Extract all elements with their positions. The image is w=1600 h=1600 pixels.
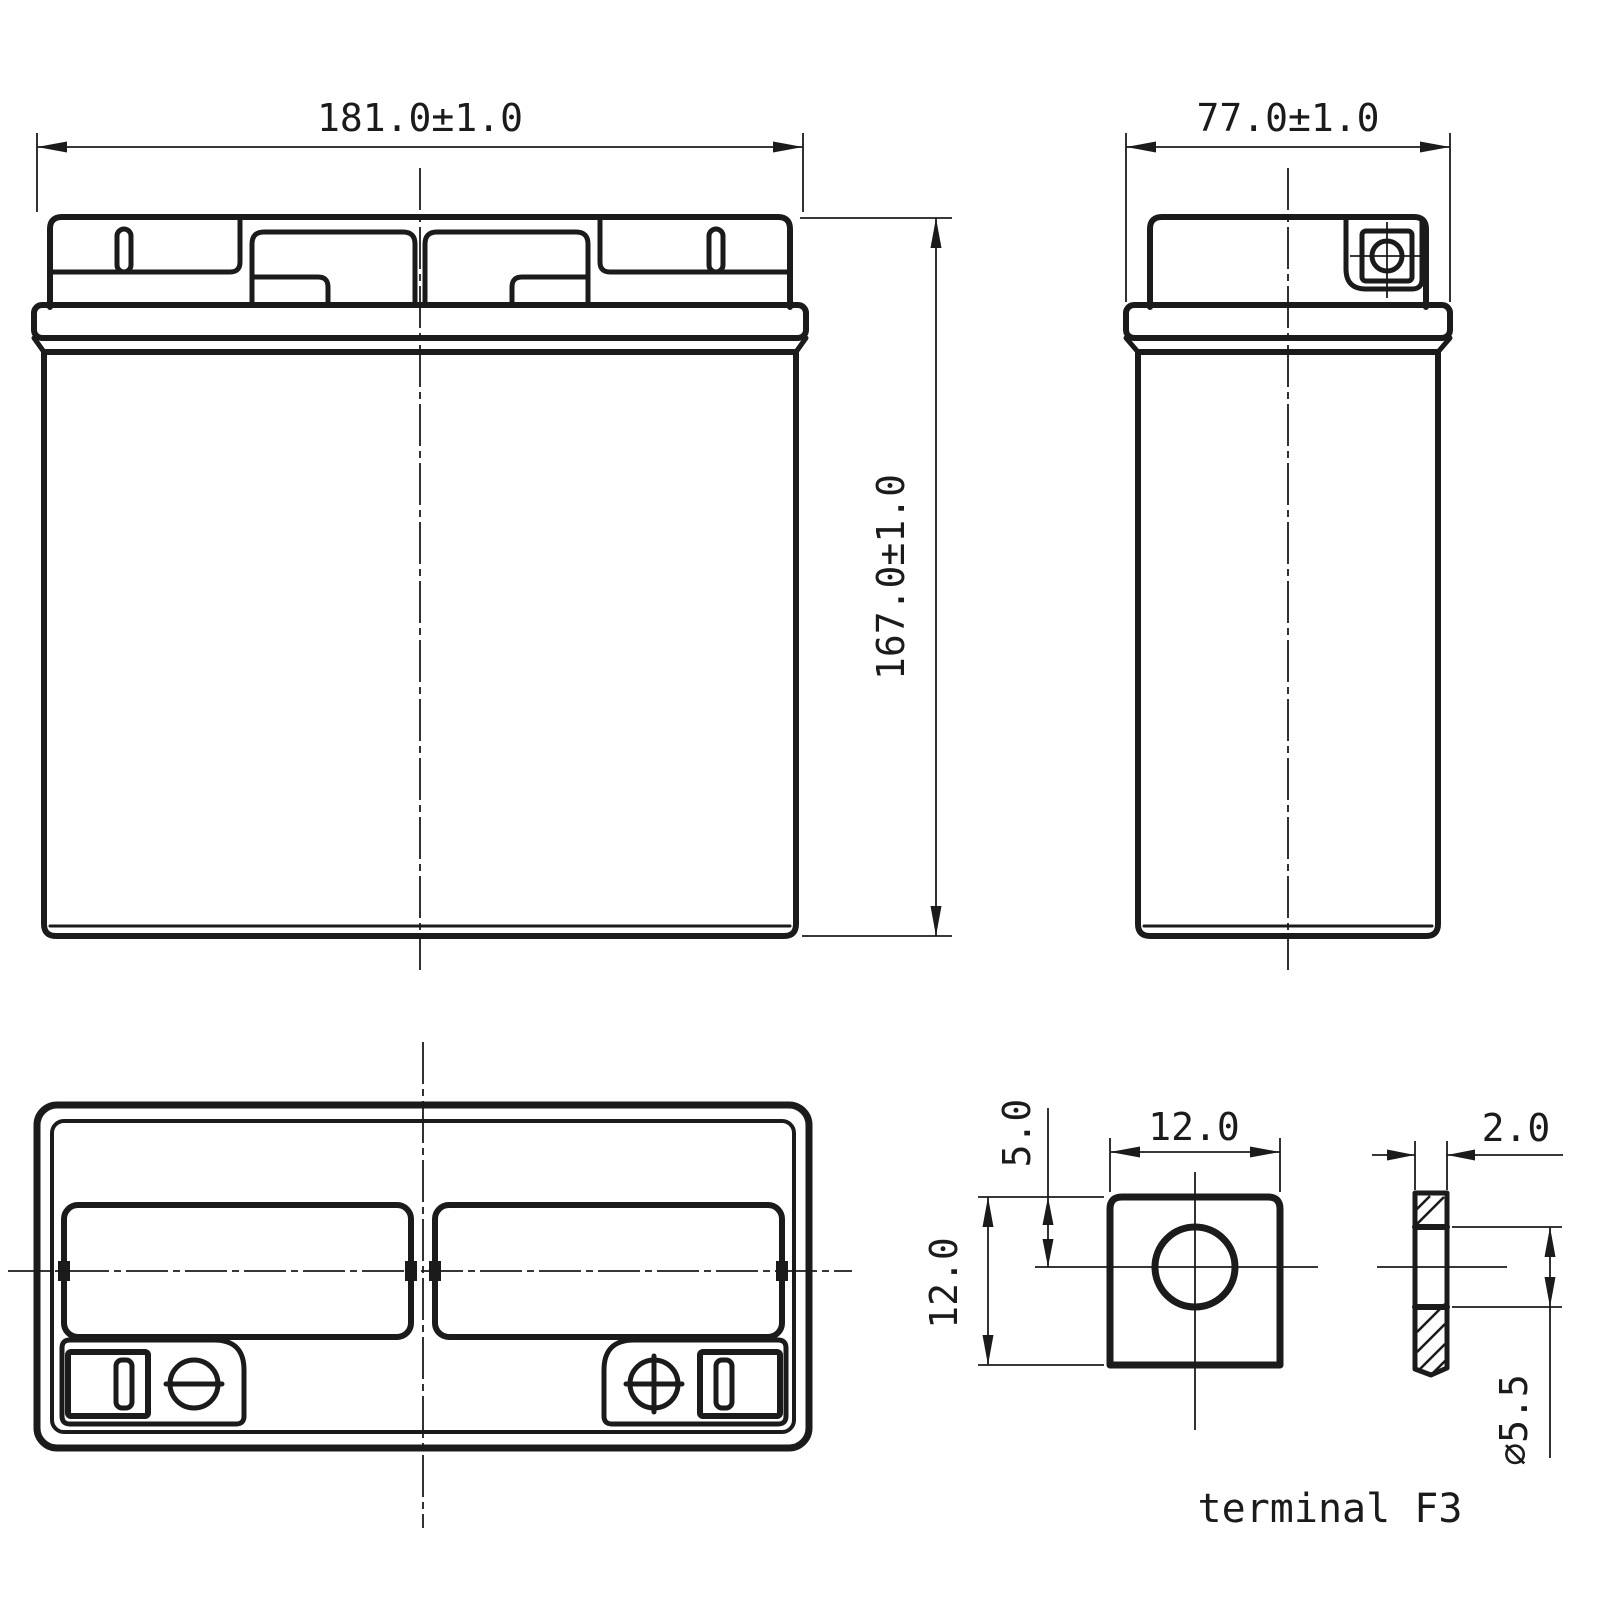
hole-diameter-label: ⌀5.5: [1492, 1374, 1536, 1466]
terminal-pad-side-section: [1377, 1193, 1507, 1375]
negative-terminal-blade: [116, 1360, 132, 1408]
positive-terminal-well: [700, 1352, 780, 1416]
front-height-label: 167.0±1.0: [869, 474, 913, 680]
side-width-label: 77.0±1.0: [1196, 96, 1379, 140]
front-height-dimension: 167.0±1.0: [800, 218, 952, 936]
arrowhead-icon: [1250, 1147, 1280, 1158]
section-hatch: [1417, 1197, 1444, 1224]
front-view: 181.0±1.0 167.0±1.0: [34, 96, 952, 970]
plus-icon: [626, 1356, 682, 1412]
arrowhead-icon: [931, 906, 942, 936]
arrowhead-icon: [1387, 1150, 1415, 1161]
terminal-caption: terminal F3: [1198, 1486, 1463, 1532]
minus-icon: [166, 1360, 222, 1408]
arrowhead-icon: [983, 1335, 994, 1365]
thickness-dimension: 2.0: [1372, 1106, 1563, 1190]
thickness-label: 2.0: [1482, 1106, 1551, 1150]
arrowhead-icon: [1545, 1277, 1556, 1307]
arrowhead-icon: [1420, 142, 1450, 153]
top-view: [8, 1042, 852, 1528]
section-hatch: [1416, 1196, 1430, 1210]
arrowhead-icon: [931, 218, 942, 248]
terminal-detail: 12.0 5.0 12.0: [922, 1099, 1563, 1532]
negative-terminal-well: [68, 1352, 148, 1416]
pad-height-dimension: 12.0: [922, 1197, 1104, 1365]
arrowhead-icon: [773, 142, 803, 153]
battery-dimension-drawing: 181.0±1.0 167.0±1.0: [0, 0, 1600, 1600]
arrowhead-icon: [1545, 1227, 1556, 1257]
cover-left-step: [50, 220, 240, 272]
hole-offset-label: 5.0: [995, 1099, 1039, 1168]
left-vent-box: [252, 232, 415, 305]
left-vent-slot: [117, 229, 131, 272]
cover-right-step: [600, 220, 790, 272]
right-vent-box: [425, 232, 588, 305]
front-width-label: 181.0±1.0: [317, 96, 523, 140]
arrowhead-icon: [1043, 1197, 1054, 1225]
hole-offset-dimension: 5.0: [978, 1099, 1104, 1267]
hole-diameter-dimension: ⌀5.5: [1452, 1227, 1562, 1466]
arrowhead-icon: [1126, 142, 1156, 153]
right-vent-slot: [709, 229, 723, 272]
arrowhead-icon: [1110, 1147, 1140, 1158]
pad-width-label: 12.0: [1148, 1105, 1240, 1149]
side-view: 77.0±1.0: [1126, 96, 1450, 970]
left-vent-box-notch: [254, 277, 328, 303]
positive-terminal-blade: [716, 1360, 732, 1408]
arrowhead-icon: [37, 142, 67, 153]
arrowhead-icon: [1043, 1239, 1054, 1267]
right-vent-box-notch: [512, 277, 586, 303]
pad-height-label: 12.0: [922, 1237, 966, 1329]
arrowhead-icon: [983, 1197, 994, 1227]
arrowhead-icon: [1447, 1150, 1475, 1161]
drawing-sheet: 181.0±1.0 167.0±1.0: [0, 0, 1600, 1600]
